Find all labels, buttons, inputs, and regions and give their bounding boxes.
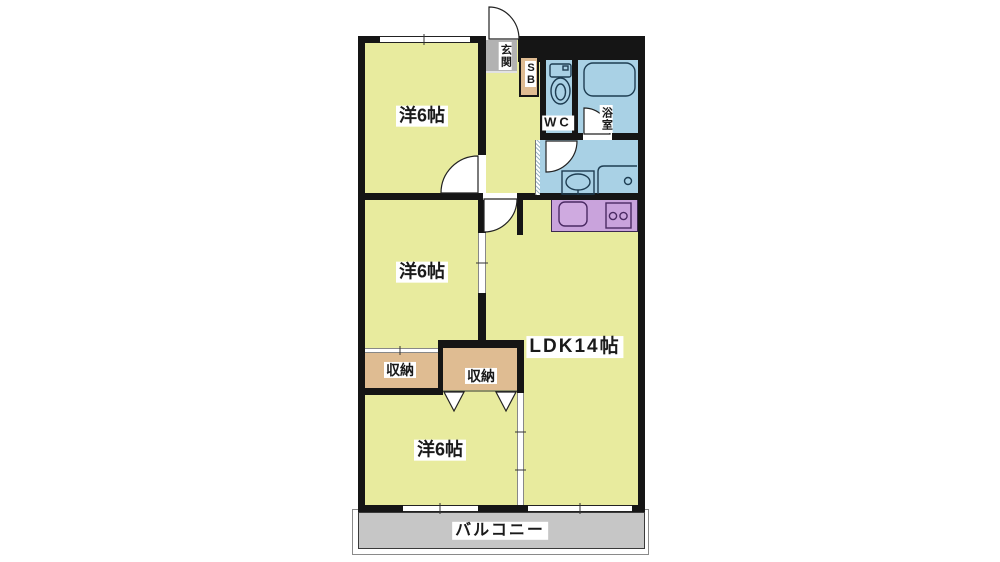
ldk-door-opening	[483, 193, 517, 200]
entrance-step	[482, 71, 517, 73]
wall-storage-right-side	[517, 340, 524, 393]
balcony-label: バルコニー	[452, 522, 548, 540]
wall-storage-top	[438, 340, 523, 348]
wall-main-horizontal-left	[358, 193, 483, 200]
wall-ldk-stub	[517, 200, 523, 235]
wall-storage-divider	[438, 348, 443, 392]
window-bottom-right	[528, 505, 632, 512]
shoe-box-label: SB	[525, 61, 536, 87]
bedroom-top-label: 洋6帖	[396, 106, 448, 127]
shoe-box: SB	[519, 56, 539, 97]
wall-storage-left-bottom	[358, 388, 443, 395]
washroom-door-frame	[535, 140, 540, 195]
window-top	[380, 36, 470, 43]
toilet-label: WC	[542, 116, 574, 131]
bedroom-top-door-opening	[478, 155, 486, 193]
bathroom-label: 浴室	[600, 105, 613, 133]
entrance-door-arc	[489, 7, 519, 39]
ldk-label: LDK14帖	[526, 336, 623, 358]
wall-right	[638, 36, 645, 512]
wall-top-b	[470, 36, 486, 43]
wall-bath-bottom-right	[612, 133, 638, 140]
bedroom-middle-label: 洋6帖	[396, 262, 448, 283]
floor-plan: SB	[0, 0, 1000, 562]
wall-top-a	[358, 36, 380, 43]
sliding-door-bedroom-bottom	[517, 393, 524, 505]
kitchen-counter	[551, 197, 638, 232]
sliding-door-bedroom-middle	[478, 233, 486, 293]
wall-bottom-c	[632, 505, 645, 512]
bath-door-sill	[583, 133, 612, 140]
storage-left-opening	[365, 348, 438, 353]
entrance-label: 玄関	[499, 42, 512, 70]
wall-wc-bottom	[540, 133, 583, 140]
storage-right-label: 収納	[465, 368, 497, 384]
wall-bedroom-top-right	[478, 43, 486, 155]
window-bottom-left	[403, 505, 478, 512]
storage-left-label: 収納	[384, 362, 416, 378]
wall-left	[358, 36, 365, 512]
bedroom-bottom-label: 洋6帖	[414, 440, 466, 461]
wall-bottom-b	[478, 505, 528, 512]
wall-bottom-a	[358, 505, 403, 512]
wall-bedroom-middle-right-top	[478, 200, 486, 233]
